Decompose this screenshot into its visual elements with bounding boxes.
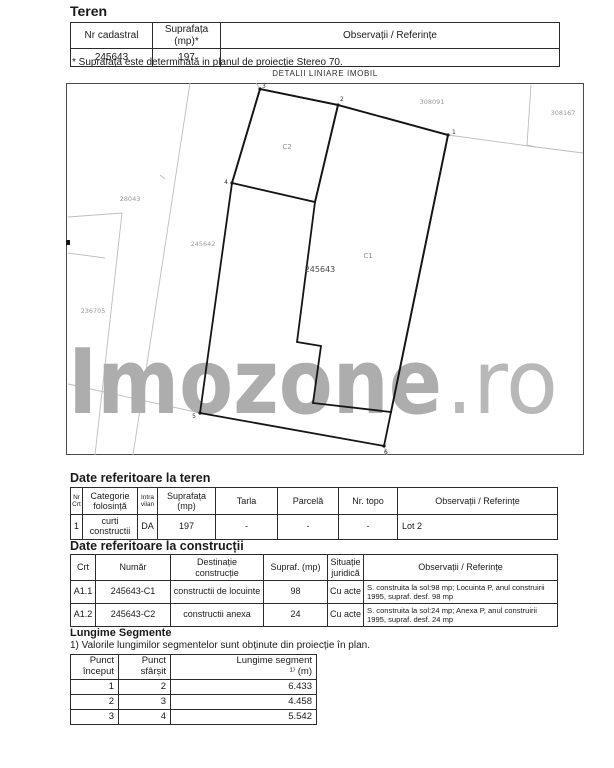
- suprafata-footnote: * Suprafața este determinată in planul d…: [72, 57, 343, 68]
- date-teren-table: Nr Crt Categorie folosință Intra vilan S…: [70, 487, 558, 540]
- dt-intravilan: DA: [138, 515, 158, 540]
- dc-r2-observatii: S. construita la sol:24 mp; Anexa P, anu…: [364, 604, 558, 627]
- dc-header-crt: Crt: [71, 555, 96, 581]
- dt-header-tarla: Tarla: [216, 488, 278, 515]
- ls-r3-len: 5.542: [171, 709, 317, 724]
- lungime-row-1: 1 2 6.433: [71, 679, 317, 694]
- dt-header-nr-crt: Nr Crt: [71, 488, 83, 515]
- dc-r1-destinatie: constructii de locuinte: [171, 581, 264, 604]
- ls-r3-start: 3: [71, 709, 119, 724]
- ls-r1-len: 6.433: [171, 679, 317, 694]
- dc-r2-destinatie: constructii anexa: [171, 604, 264, 627]
- building-label-c2: C2: [282, 143, 291, 151]
- lungime-header-row: Punct început Punct sfârșit Lungime segm…: [71, 655, 317, 680]
- date-teren-header-row: Nr Crt Categorie folosință Intra vilan S…: [71, 488, 558, 515]
- dt-tarla: -: [216, 515, 278, 540]
- dt-header-nr-topo: Nr. topo: [339, 488, 398, 515]
- teren-header-nr-cadastral: Nr cadastral: [71, 23, 153, 49]
- dc-header-numar: Număr: [96, 555, 171, 581]
- ls-header-start: Punct început: [71, 655, 119, 680]
- point-label-1: 1: [452, 129, 456, 136]
- cadastral-document-page: { "colors": { "watermark_main": "#adadad…: [0, 0, 614, 768]
- teren-header-row: Nr cadastral Suprafața (mp)* Observații …: [71, 23, 560, 49]
- dc-r2-supraf: 24: [264, 604, 328, 627]
- dc-r2-crt: A1.2: [71, 604, 96, 627]
- neighbor-label-28043: 28043: [120, 195, 141, 203]
- building-label-c1: C1: [363, 252, 372, 260]
- dc-header-supraf: Supraf. (mp): [264, 555, 328, 581]
- map-caption: DETALII LINIARE IMOBIL: [66, 69, 584, 78]
- ls-header-end: Punct sfârșit: [119, 655, 171, 680]
- dc-r1-numar: 245643-C1: [96, 581, 171, 604]
- point-label-5: 5: [192, 413, 196, 420]
- dc-r1-observatii: S. construita la sol:98 mp; Locuinta P, …: [364, 581, 558, 604]
- dt-header-observatii: Observații / Referințe: [398, 488, 558, 515]
- cadastral-plan: Imozone .ro 308091 308167 28043 245642 2…: [66, 83, 584, 455]
- date-constructii-table: Crt Număr Destinație construcție Supraf.…: [70, 554, 558, 627]
- svg-text:Imozone: Imozone: [68, 330, 442, 435]
- dc-r1-crt: A1.1: [71, 581, 96, 604]
- dt-header-categorie: Categorie folosință: [83, 488, 138, 515]
- ls-header-length: Lungime segment ¹⁾ (m): [171, 655, 317, 680]
- point-label-3: 3: [262, 83, 266, 90]
- dt-nr-crt: 1: [71, 515, 83, 540]
- dt-header-suprafata: Suprafața (mp): [158, 488, 216, 515]
- neighbor-label-308091: 308091: [420, 98, 445, 106]
- imozone-watermark: Imozone .ro: [68, 330, 558, 435]
- dt-suprafata: 197: [158, 515, 216, 540]
- constructii-row-a12: A1.2 245643-C2 constructii anexa 24 Cu a…: [71, 604, 558, 627]
- lungime-title: Lungime Segmente: [70, 627, 171, 639]
- lungime-note: 1) Valorile lungimilor segmentelor sunt …: [70, 640, 370, 651]
- ls-r1-start: 1: [71, 679, 119, 694]
- dt-header-intravilan: Intra vilan: [138, 488, 158, 515]
- neighbor-label-236705: 236705: [81, 307, 106, 315]
- point-label-4: 4: [224, 179, 228, 186]
- teren-header-observatii: Observații / Referințe: [221, 23, 560, 49]
- neighbor-label-308167: 308167: [551, 109, 576, 117]
- teren-header-suprafata: Suprafața (mp)*: [153, 23, 221, 49]
- svg-text:.ro: .ro: [446, 331, 558, 434]
- dc-r1-supraf: 98: [264, 581, 328, 604]
- dt-header-parcela: Parcelă: [278, 488, 339, 515]
- date-teren-data-row: 1 curti constructii DA 197 - - - Lot 2: [71, 515, 558, 540]
- dt-observatii: Lot 2: [398, 515, 558, 540]
- ls-r3-end: 4: [119, 709, 171, 724]
- dt-categorie: curti constructii: [83, 515, 138, 540]
- teren-title: Teren: [70, 3, 107, 19]
- ls-r2-start: 2: [71, 694, 119, 709]
- dc-r2-numar: 245643-C2: [96, 604, 171, 627]
- date-constructii-title: Date referitoare la construcții: [70, 539, 244, 553]
- lungime-row-2: 2 3 4.458: [71, 694, 317, 709]
- dc-header-destinatie: Destinație construcție: [171, 555, 264, 581]
- lungime-row-3: 3 4 5.542: [71, 709, 317, 724]
- point-label-6: 6: [384, 449, 388, 455]
- date-teren-title: Date referitoare la teren: [70, 471, 210, 485]
- point-label-2: 2: [340, 96, 344, 103]
- lungime-table: Punct început Punct sfârșit Lungime segm…: [70, 654, 317, 725]
- neighbor-label-245642: 245642: [191, 240, 216, 248]
- dt-parcela: -: [278, 515, 339, 540]
- constructii-row-a11: A1.1 245643-C1 constructii de locuinte 9…: [71, 581, 558, 604]
- constructii-header-row: Crt Număr Destinație construcție Supraf.…: [71, 555, 558, 581]
- dc-r2-situatie: Cu acte: [328, 604, 364, 627]
- parcel-number-label: 245643: [305, 265, 336, 274]
- dc-header-observatii: Observații / Referințe: [364, 555, 558, 581]
- ls-r2-end: 3: [119, 694, 171, 709]
- dc-header-situatie: Situație juridică: [328, 555, 364, 581]
- dc-r1-situatie: Cu acte: [328, 581, 364, 604]
- dt-nr-topo: -: [339, 515, 398, 540]
- ls-r1-end: 2: [119, 679, 171, 694]
- ls-r2-len: 4.458: [171, 694, 317, 709]
